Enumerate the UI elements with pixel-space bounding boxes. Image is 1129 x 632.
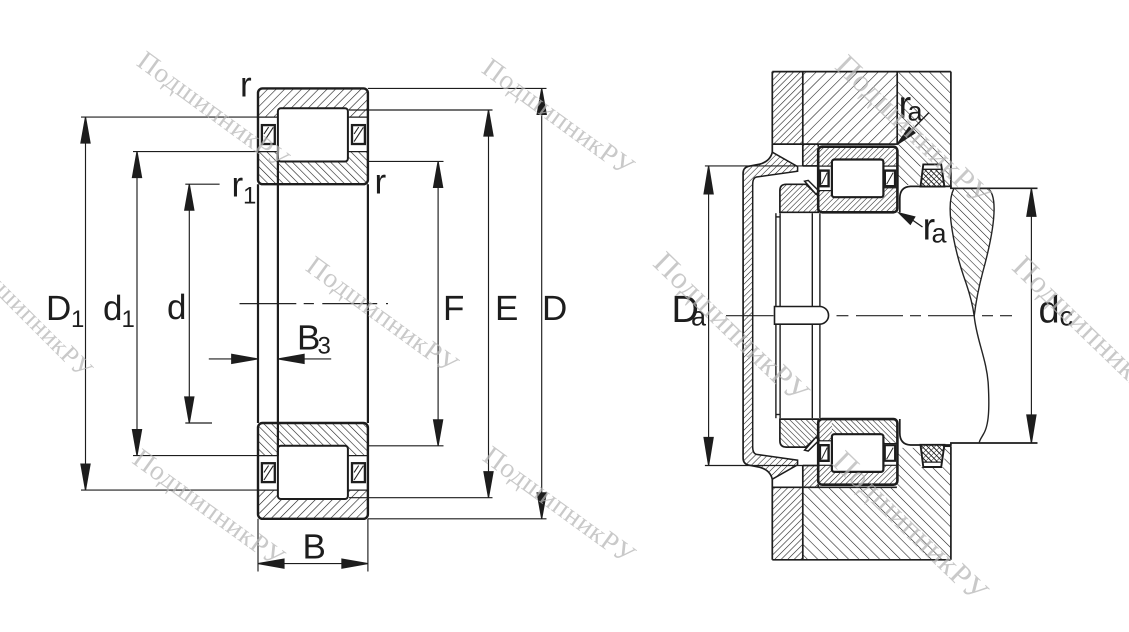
svg-text:F: F bbox=[443, 289, 464, 328]
svg-text:a: a bbox=[931, 219, 947, 249]
svg-text:r: r bbox=[231, 166, 243, 205]
svg-text:1: 1 bbox=[121, 306, 134, 333]
svg-text:d: d bbox=[103, 289, 122, 328]
svg-text:3: 3 bbox=[317, 333, 330, 360]
svg-text:D: D bbox=[542, 289, 567, 328]
svg-text:B: B bbox=[302, 528, 325, 567]
svg-text:1: 1 bbox=[243, 183, 256, 210]
svg-text:r: r bbox=[240, 66, 252, 105]
svg-text:1: 1 bbox=[71, 306, 84, 333]
svg-text:r: r bbox=[374, 163, 386, 202]
svg-text:d: d bbox=[167, 288, 186, 327]
svg-text:E: E bbox=[495, 289, 518, 328]
